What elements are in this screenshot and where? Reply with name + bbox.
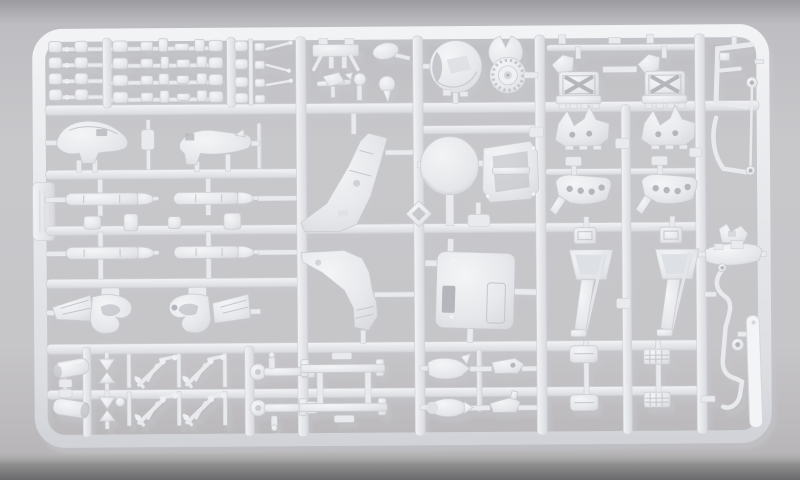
sprue-photo-svg (0, 0, 800, 480)
photo-bottom-shade-band (0, 452, 800, 480)
sprue-photo (0, 0, 800, 480)
